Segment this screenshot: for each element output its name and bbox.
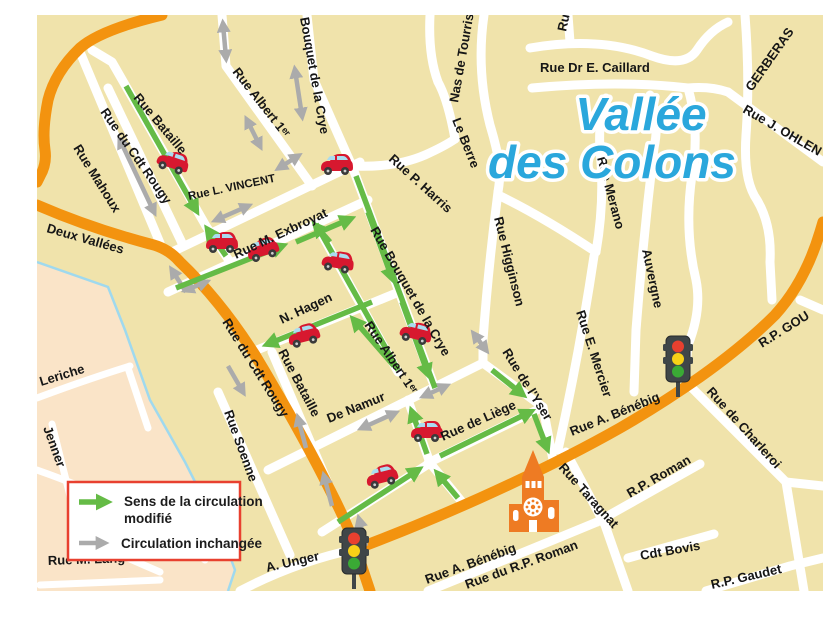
- map-title-line1: Vallée: [575, 88, 706, 140]
- map-title-line2: des Colons: [488, 136, 736, 188]
- legend-modified-label-line1: Sens de la circulation: [124, 494, 263, 509]
- street-map: Rue Bataille Rue du Cdt Rougy Rue Mahoux…: [0, 0, 835, 617]
- street-label-dr-caillard: Rue Dr E. Caillard: [540, 60, 650, 75]
- legend-modified-label-line2: modifié: [124, 511, 172, 526]
- legend-unchanged-label: Circulation inchangée: [121, 536, 263, 551]
- map-page: Rue Bataille Rue du Cdt Rougy Rue Mahoux…: [0, 0, 835, 617]
- legend: Sens de la circulation modifié Circulati…: [68, 482, 263, 560]
